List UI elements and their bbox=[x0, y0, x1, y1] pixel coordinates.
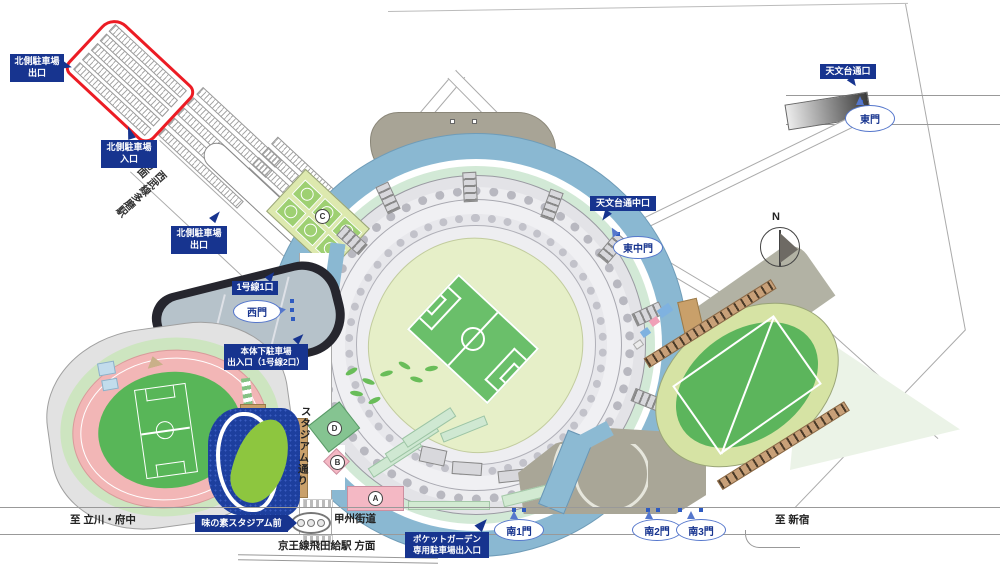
entrance-circle bbox=[297, 519, 305, 527]
label-under-stadium-parking: 本体下駐車場 出入口（1号線2口） bbox=[224, 344, 308, 370]
mint-strip bbox=[408, 501, 490, 510]
road-top-east-edge1 bbox=[786, 95, 1000, 96]
pitch-penalty-bottom bbox=[156, 461, 186, 477]
gate-tail bbox=[856, 96, 864, 105]
gate-east: 東門 bbox=[845, 105, 895, 132]
entrance-circle bbox=[317, 519, 325, 527]
zone-d-badge: D bbox=[327, 421, 342, 436]
gate-tail bbox=[645, 511, 653, 519]
west-gate-marker bbox=[291, 317, 295, 321]
south3-gate-marker bbox=[678, 508, 682, 512]
label-pocket-garden: ポケットガーデン 専用駐車場出入口 bbox=[405, 532, 489, 558]
gate-west: 西門 bbox=[233, 300, 281, 323]
road-label-keio: 京王線飛田給駅 方面 bbox=[278, 538, 375, 553]
boundary-line-north bbox=[388, 3, 908, 12]
compass-north-label: N bbox=[772, 211, 780, 223]
label-north-parking-entrance: 北側駐車場 入口 bbox=[101, 140, 157, 168]
pitch-penalty-top bbox=[145, 385, 175, 401]
label-north-parking-exit-mid: 北側駐車場 出口 bbox=[171, 226, 227, 254]
stadium-stair-pier bbox=[462, 172, 478, 203]
zone-a-badge: A bbox=[368, 491, 383, 506]
compass bbox=[760, 227, 800, 267]
gate-tail bbox=[687, 511, 695, 519]
south2-gate-marker bbox=[656, 508, 660, 512]
gate-south1: 南1門 bbox=[494, 519, 544, 541]
pitch-center-circle bbox=[155, 420, 175, 440]
park-structure-square2 bbox=[472, 119, 477, 124]
road-corner-hook bbox=[745, 530, 800, 548]
zone-b-badge: B bbox=[330, 455, 345, 470]
west-gate-marker bbox=[290, 308, 294, 312]
sport-plaza-building bbox=[208, 408, 300, 516]
gate-tail bbox=[510, 511, 518, 519]
boundary-line-east bbox=[905, 4, 966, 330]
label-north-parking-exit-top: 北側駐車場 出口 bbox=[10, 54, 64, 82]
stadium-area-map: 西武線多磨駅 方面 C bbox=[0, 0, 1000, 573]
label-ajinomoto-stadium-mae: 味の素スタジアム前 bbox=[195, 515, 288, 532]
compass-needle-fill bbox=[780, 233, 798, 263]
label-tenmondai-mid-exit: 天文台通中口 bbox=[590, 196, 656, 211]
gate-east-middle: 東中門 bbox=[613, 236, 663, 259]
gate-south2: 南2門 bbox=[632, 519, 682, 541]
road-label-tachikawa: 至 立川・府中 bbox=[70, 512, 136, 527]
entrance-circle bbox=[307, 519, 315, 527]
label-tenmondai-exit: 天文台通口 bbox=[820, 64, 876, 79]
label-tail bbox=[288, 515, 297, 531]
gate-south3: 南3門 bbox=[676, 519, 726, 541]
keio-rail-line2 bbox=[238, 559, 438, 563]
zone-c-badge: C bbox=[315, 209, 330, 224]
south3-gate-marker bbox=[699, 508, 703, 512]
west-gate-marker bbox=[290, 299, 294, 303]
road-label-koshu: 甲州街道 bbox=[334, 511, 376, 526]
road-label-shinjuku: 至 新宿 bbox=[775, 512, 809, 527]
park-structure-square1 bbox=[450, 119, 455, 124]
road-koshu-edge1 bbox=[0, 507, 1000, 508]
station-entrance-oval bbox=[291, 512, 331, 534]
south1-gate-marker bbox=[522, 508, 526, 512]
stadium-annex bbox=[452, 461, 483, 476]
road-tenmondai-street bbox=[618, 110, 869, 240]
label-line1-gate1: 1号線1口 bbox=[232, 281, 278, 295]
